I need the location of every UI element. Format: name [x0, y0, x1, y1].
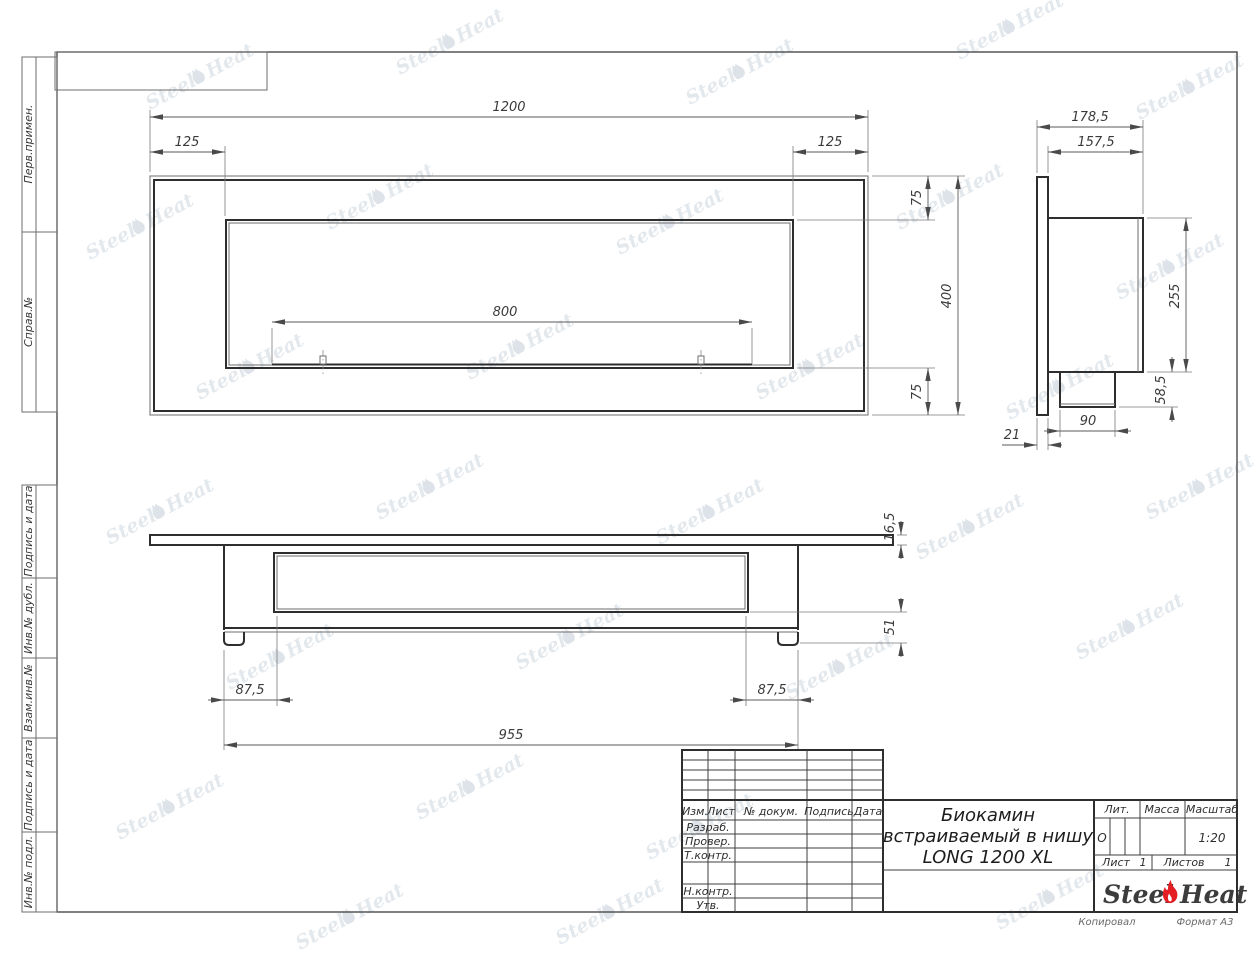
title-block: Изм. Лист № докум. Подпись Дата Разраб. … — [682, 750, 1248, 928]
lit-value: О — [1097, 831, 1106, 845]
doc-title-line3: LONG 1200 XL — [923, 847, 1054, 868]
dim-top-body-width: 955 — [499, 728, 524, 743]
drawing-canvas: Steel Heat Перв.примен. Справ — [0, 0, 1255, 970]
row-utv: Утв. — [696, 899, 719, 912]
foot-left — [224, 632, 244, 645]
sheet-label: Лист — [1101, 856, 1130, 869]
col-list: Лист — [706, 805, 735, 818]
drawing-sheet: Steel Heat Перв.примен. Справ — [0, 0, 1255, 970]
row-nkontr: Н.контр. — [683, 885, 732, 898]
scale-label: Масштаб — [1186, 803, 1238, 816]
margin-label-podpis-data-1: Подпись и дата — [22, 485, 35, 576]
dim-front-bottom-inset: 75 — [910, 384, 925, 401]
dim-front-inset-left: 125 — [175, 135, 200, 150]
margin-label-perv-primen: Перв.примен. — [22, 104, 35, 183]
sheets-value: 1 — [1225, 856, 1232, 869]
row-razrab: Разраб. — [686, 821, 729, 834]
mass-label: Масса — [1144, 803, 1179, 816]
margin-label-inv-podl: Инв.№ подл. — [22, 836, 35, 908]
col-izm: Изм. — [682, 805, 708, 818]
col-date: Дата — [853, 805, 883, 818]
dim-side-total-depth: 178,5 — [1071, 110, 1108, 125]
steelheat-logo: Steel Heat — [1103, 880, 1248, 909]
margin-label-inv-dubl: Инв.№ дубл. — [22, 582, 35, 654]
margin-label-vzam-inv: Взам.инв.№ — [22, 664, 35, 732]
burner-mark-right — [698, 350, 704, 376]
margin-label-podpis-data-2: Подпись и дата — [22, 739, 35, 830]
dim-side-body-height: 255 — [1168, 284, 1183, 309]
row-prover: Провер. — [685, 835, 731, 848]
dim-top-inset-right: 87,5 — [758, 683, 787, 698]
margin-stamps: Перв.примен. Справ.№ Подпись и дата Инв.… — [22, 57, 57, 912]
sheet-value: 1 — [1140, 856, 1147, 869]
margin-label-sprav-no: Справ.№ — [22, 297, 35, 347]
top-view: 16,5 51 87,5 87,5 955 — [150, 513, 907, 750]
foot-right — [778, 632, 798, 645]
dim-front-top-inset: 75 — [910, 190, 925, 207]
front-view: 1200 125 125 800 75 400 75 — [150, 100, 965, 415]
dim-front-inset-right: 125 — [818, 135, 843, 150]
col-sign: Подпись — [804, 805, 853, 818]
doc-title-line2: встраиваемый в нишу — [883, 826, 1093, 847]
scale-value: 1:20 — [1199, 831, 1226, 845]
row-tkontr: Т.контр. — [684, 849, 732, 862]
format-label: Формат А3 — [1177, 917, 1234, 928]
dim-front-total-width: 1200 — [492, 100, 525, 115]
dim-side-body-depth: 157,5 — [1077, 135, 1114, 150]
burner-mark-left — [320, 350, 326, 376]
dim-side-box-height: 58,5 — [1154, 376, 1169, 405]
doc-title-line1: Биокамин — [941, 805, 1035, 826]
dim-top-flange-thickness: 16,5 — [883, 513, 898, 542]
dim-side-box-width: 90 — [1080, 414, 1097, 429]
dim-top-inset-left: 87,5 — [236, 683, 265, 698]
col-doc: № докум. — [743, 805, 798, 818]
dim-top-base-height: 51 — [883, 619, 898, 636]
dim-side-flange-thickness: 21 — [1004, 428, 1021, 443]
dim-front-total-height: 400 — [940, 284, 955, 309]
logo-heat-text: Heat — [1179, 880, 1248, 909]
sheets-label: Листов — [1162, 856, 1204, 869]
lit-label: Лит. — [1103, 803, 1129, 816]
dim-front-burner-length: 800 — [493, 305, 518, 320]
copied-label: Копировал — [1078, 917, 1136, 928]
